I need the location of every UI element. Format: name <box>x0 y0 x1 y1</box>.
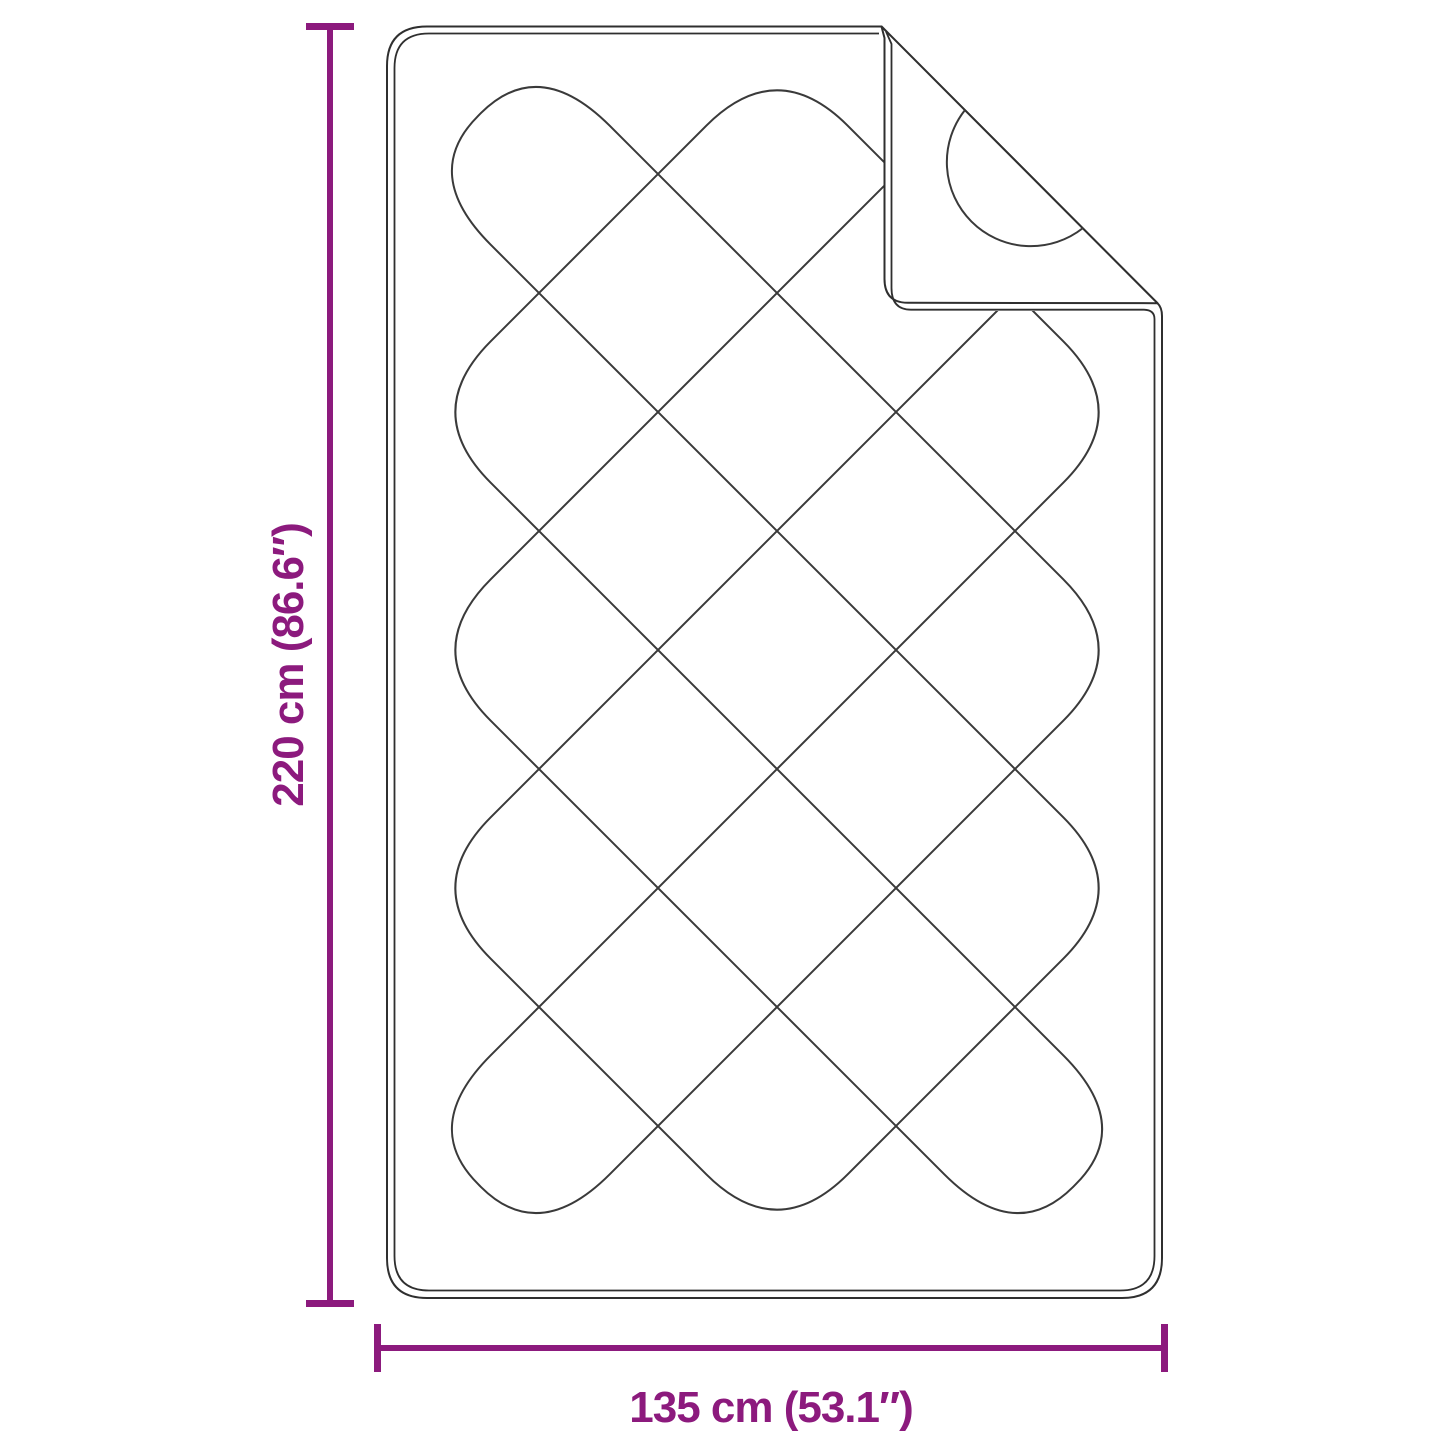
folded-corner-flap <box>882 27 1158 304</box>
width-dimension <box>377 1324 1165 1372</box>
width-dimension-label: 135 cm (53.1″) <box>629 1383 912 1432</box>
height-dimension-label: 220 cm (86.6″) <box>264 523 313 806</box>
height-dimension <box>306 27 354 1304</box>
blanket-diagram-svg: 220 cm (86.6″) 135 cm (53.1″) <box>0 0 1445 1445</box>
diagram-canvas: 220 cm (86.6″) 135 cm (53.1″) <box>0 0 1445 1445</box>
